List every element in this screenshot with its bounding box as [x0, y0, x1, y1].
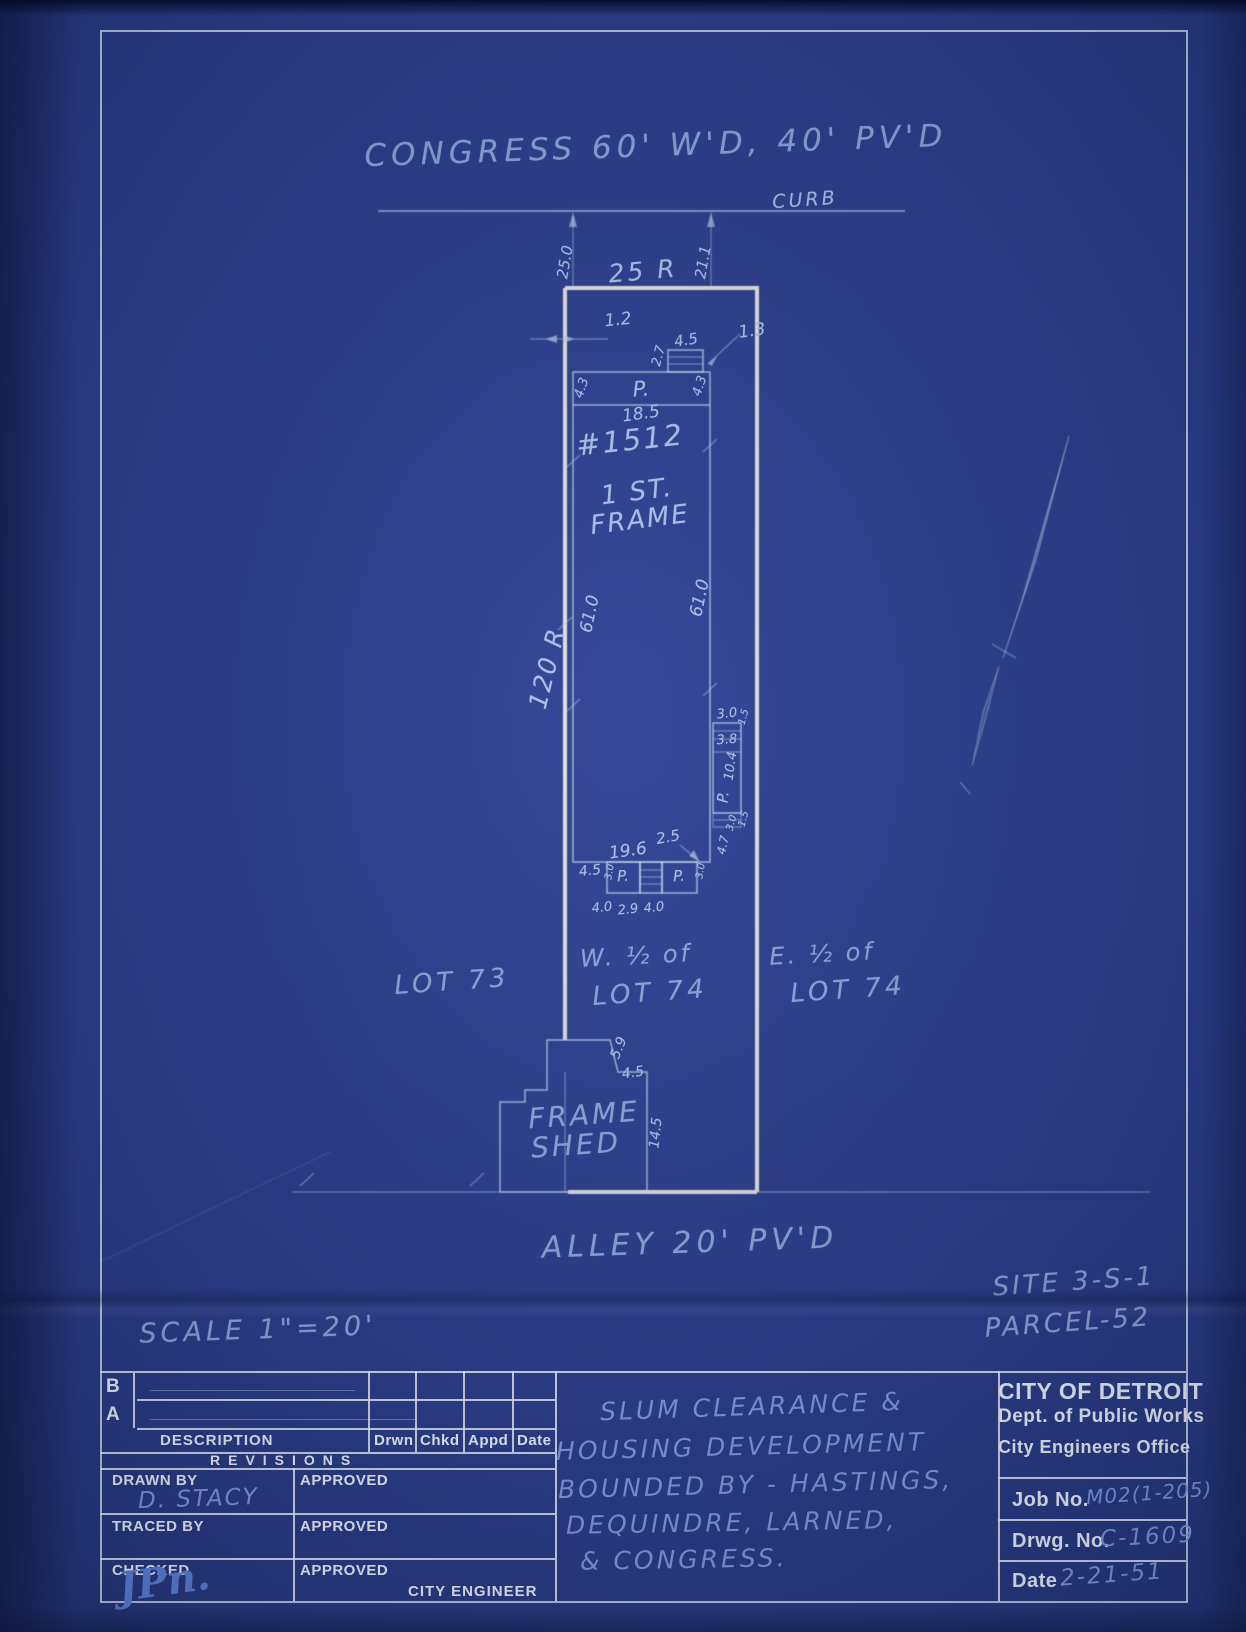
revisions-title: REVISIONS — [210, 1452, 358, 1468]
col-appd: Appd — [468, 1432, 508, 1449]
revision-row-b: B — [106, 1376, 120, 1398]
titleblock-line — [368, 1371, 370, 1452]
agency-dept: Dept. of Public Works — [998, 1406, 1186, 1428]
titleblock-line — [463, 1371, 465, 1452]
titleblock-line — [100, 1468, 555, 1470]
titleblock-line — [133, 1373, 135, 1428]
titleblock-line — [137, 1428, 555, 1430]
titleblock-line — [998, 1477, 1186, 1479]
titleblock-line — [137, 1399, 555, 1401]
date-label: Date — [1012, 1570, 1057, 1593]
project-line-4: DEQUINDRE, LARNED, — [566, 1505, 898, 1540]
city-engineer-label: CITY ENGINEER — [408, 1583, 537, 1600]
approved-label-2: APPROVED — [300, 1518, 388, 1535]
titleblock-line — [100, 1371, 1186, 1373]
agency-office: City Engineers Office — [998, 1437, 1186, 1458]
job-no-label: Job No. — [1012, 1489, 1089, 1512]
revision-entry-rule — [150, 1419, 415, 1420]
titleblock-line — [555, 1371, 557, 1601]
revision-row-a: A — [106, 1404, 120, 1426]
col-drwn: Drwn — [374, 1432, 414, 1449]
traced-by-label: TRACED BY — [112, 1518, 204, 1535]
approved-label-1: APPROVED — [300, 1472, 388, 1489]
project-line-5: & CONGRESS. — [580, 1543, 788, 1576]
titleblock-line — [415, 1371, 417, 1452]
drawn-by-value: D. STACY — [138, 1484, 260, 1514]
sheet-border — [100, 30, 1188, 1603]
agency-name: CITY OF DETROIT — [998, 1378, 1186, 1405]
col-date: Date — [517, 1432, 552, 1449]
titleblock-line — [293, 1468, 295, 1601]
drwg-no-label: Drwg. No. — [1012, 1530, 1110, 1553]
titleblock-line — [100, 1513, 555, 1515]
titleblock-line — [512, 1371, 514, 1452]
col-chkd: Chkd — [420, 1432, 460, 1449]
titleblock-line — [998, 1519, 1186, 1521]
drwg-no-value: C-1609 — [1099, 1522, 1195, 1553]
blueprint-sheet: CONGRESS 60' W'D, 40' PV'DCURB25.021.125… — [0, 0, 1246, 1632]
revision-entry-rule — [150, 1390, 355, 1391]
approved-label-3: APPROVED — [300, 1562, 388, 1579]
description-header: DESCRIPTION — [160, 1432, 274, 1449]
